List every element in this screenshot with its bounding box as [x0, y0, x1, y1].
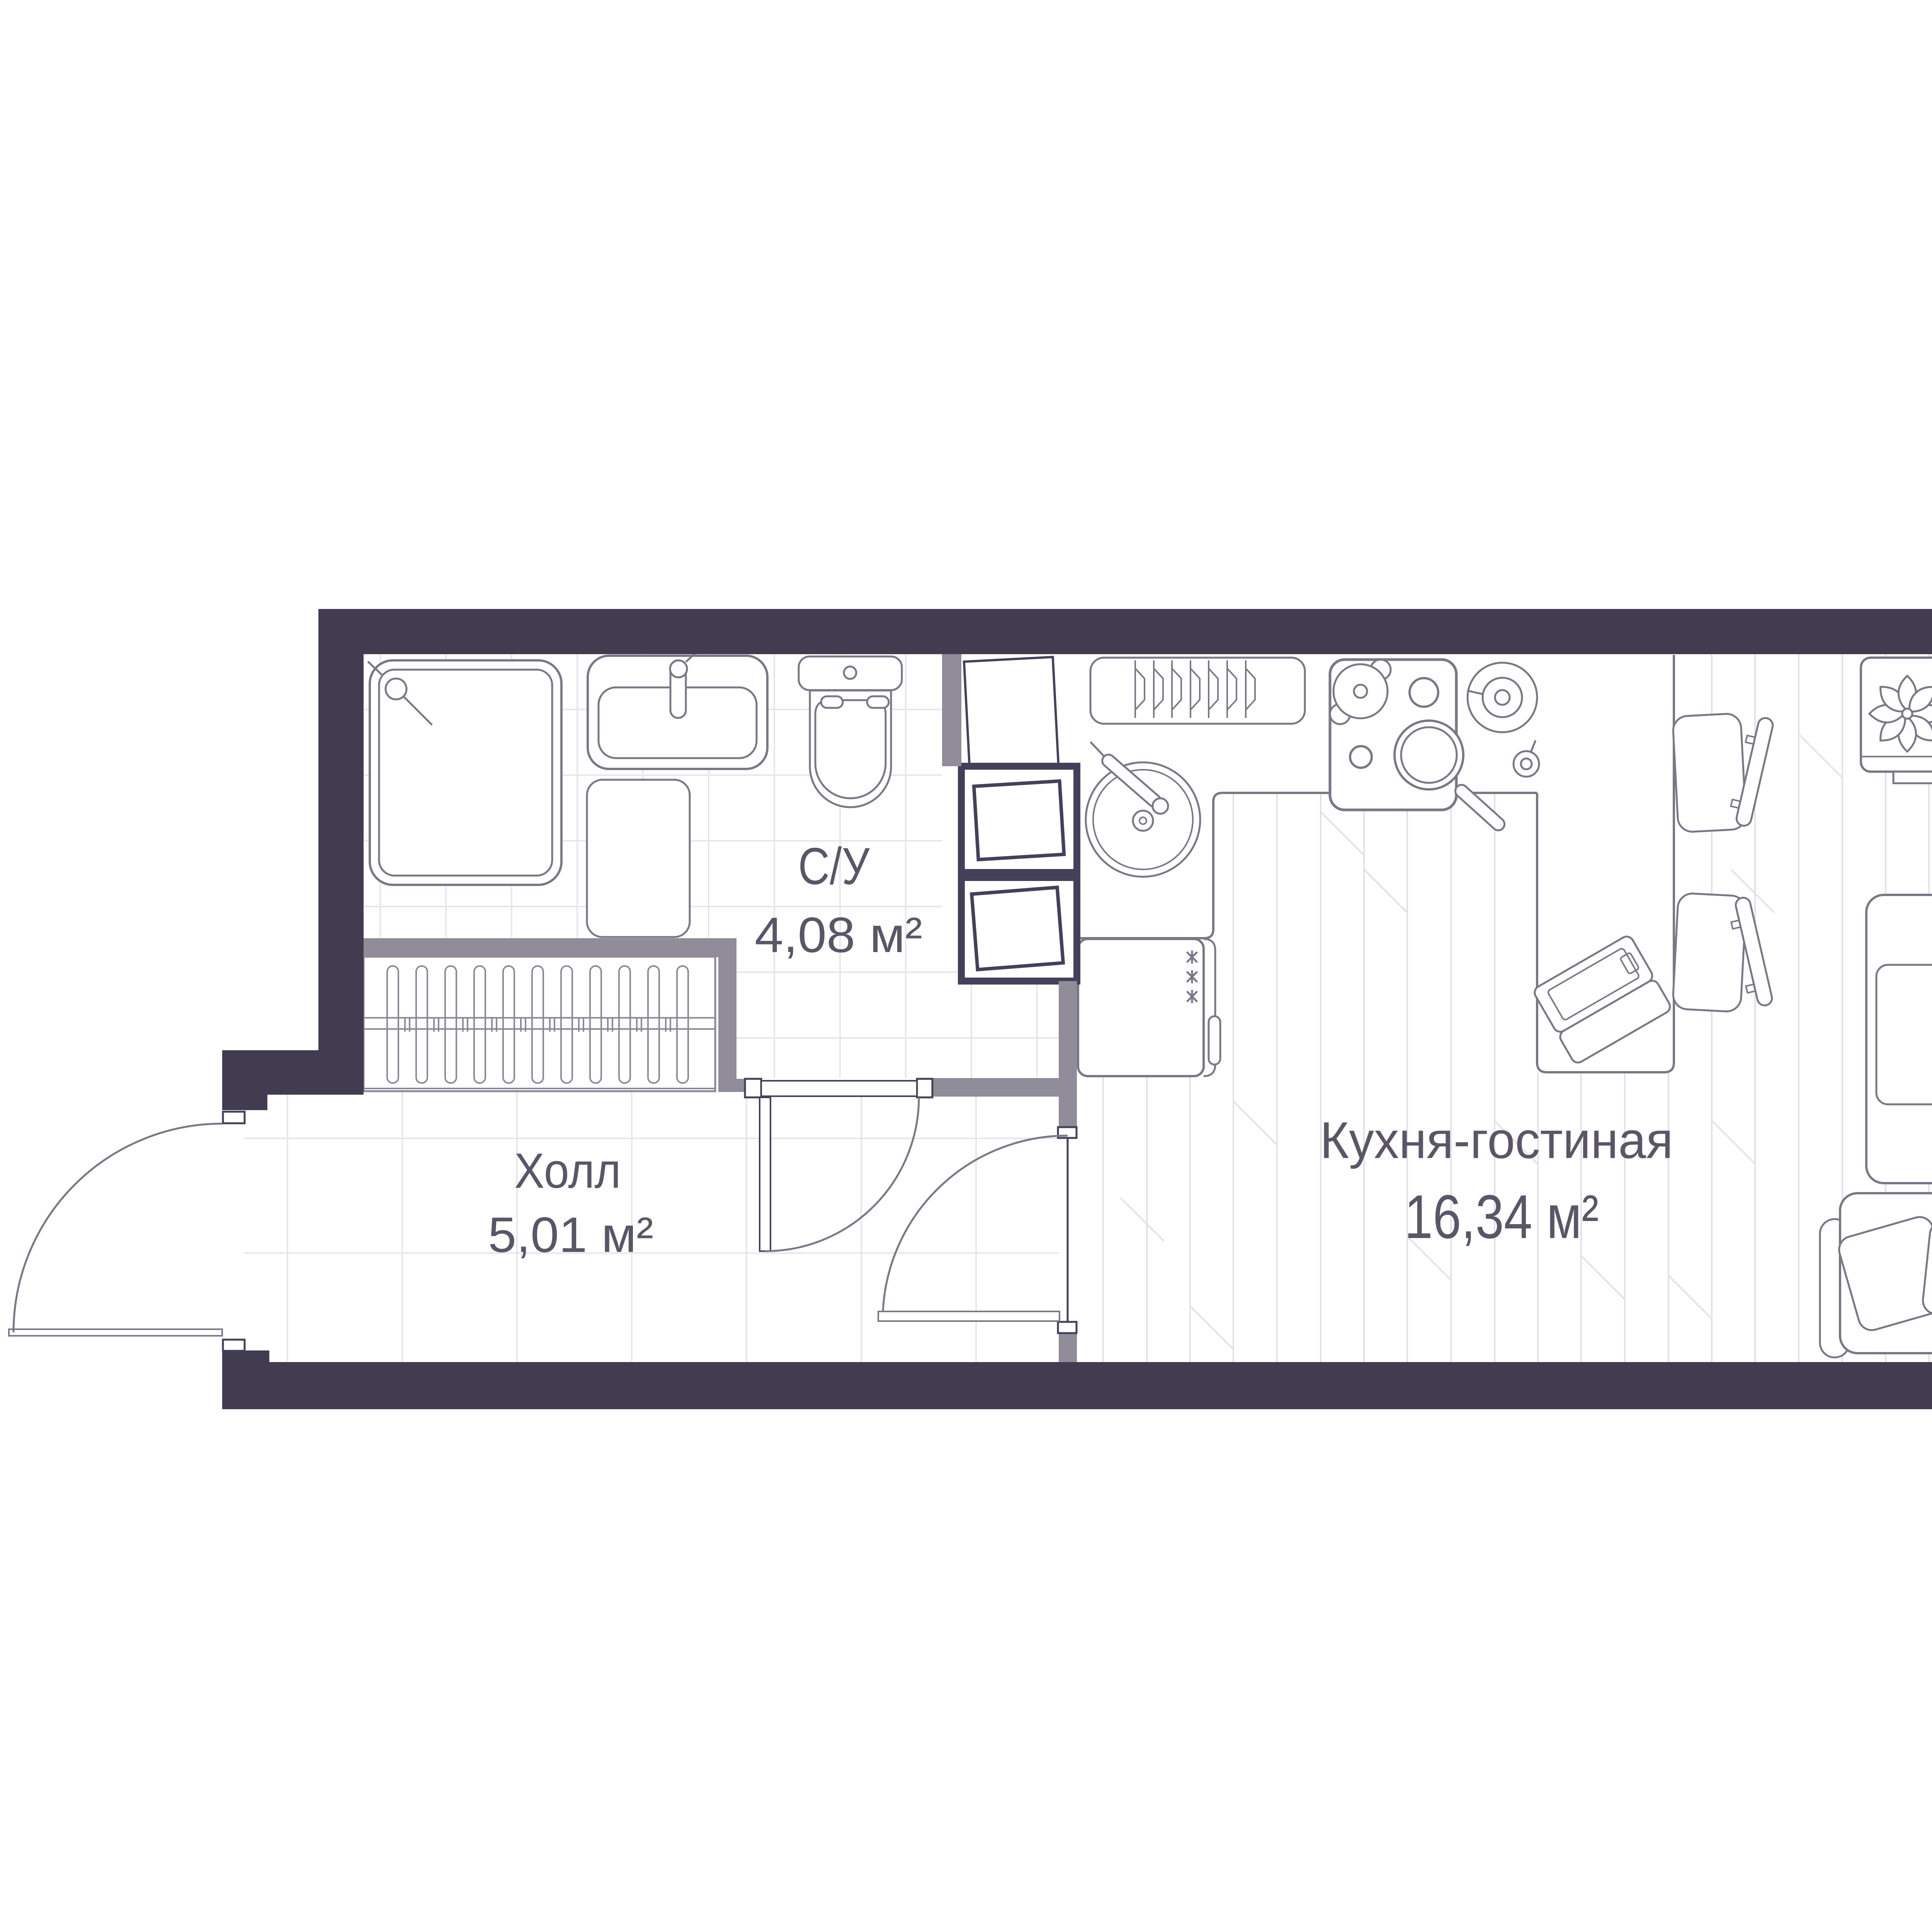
svg-text:С/У: С/У: [798, 837, 870, 895]
svg-text:Кухня-гостиная: Кухня-гостиная: [1320, 1112, 1673, 1169]
svg-text:16,34 м²: 16,34 м²: [1405, 1182, 1599, 1251]
svg-text:5,01 м²: 5,01 м²: [488, 1207, 653, 1263]
svg-text:Холл: Холл: [514, 1143, 621, 1199]
svg-text:4,08 м²: 4,08 м²: [755, 907, 922, 963]
